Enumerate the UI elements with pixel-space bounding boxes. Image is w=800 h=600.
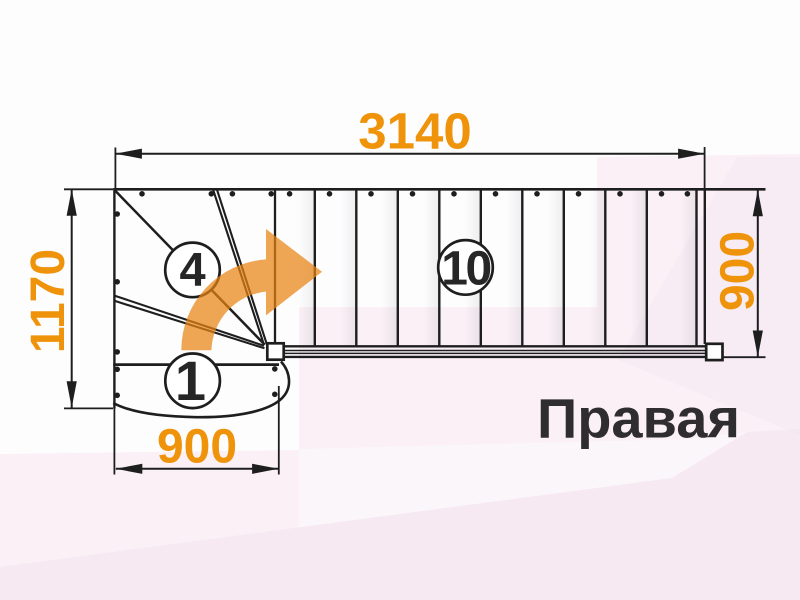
- svg-text:Правая: Правая: [537, 387, 740, 450]
- svg-text:900: 900: [157, 421, 237, 474]
- svg-text:3140: 3140: [358, 103, 471, 160]
- svg-text:1170: 1170: [22, 249, 75, 353]
- svg-text:900: 900: [712, 231, 765, 311]
- svg-text:10: 10: [441, 243, 490, 296]
- svg-text:4: 4: [180, 242, 206, 295]
- svg-text:1: 1: [175, 349, 206, 412]
